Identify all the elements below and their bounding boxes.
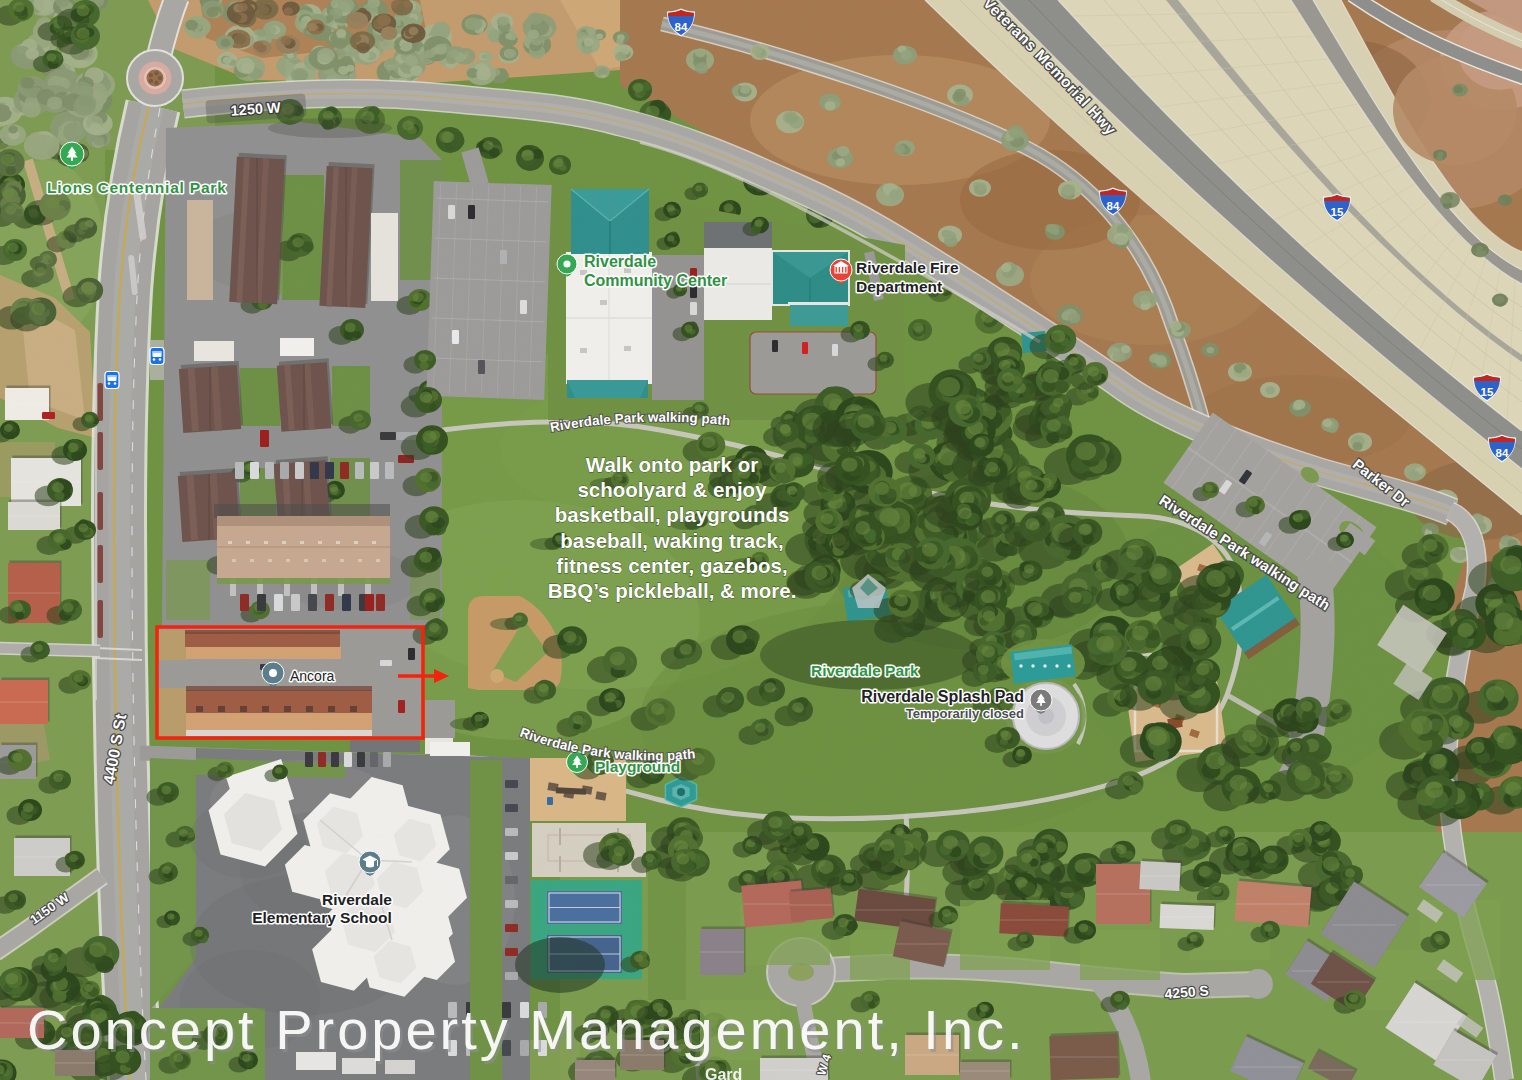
svg-text:Riverdale Splash Pad: Riverdale Splash Pad <box>861 688 1024 705</box>
svg-text:Playground: Playground <box>595 758 680 775</box>
svg-text:15: 15 <box>1481 386 1494 398</box>
svg-text:basketball, playgrounds: basketball, playgrounds <box>555 503 790 526</box>
svg-text:Walk onto park or: Walk onto park or <box>586 453 758 476</box>
svg-text:Department: Department <box>856 278 942 295</box>
svg-text:Elementary School: Elementary School <box>252 909 392 926</box>
svg-text:15: 15 <box>1331 206 1344 218</box>
svg-text:Riverdale Park: Riverdale Park <box>811 662 919 679</box>
svg-text:Riverdale Fire: Riverdale Fire <box>856 259 959 276</box>
svg-text:BBQ’s pickleball, & more.: BBQ’s pickleball, & more. <box>548 579 797 602</box>
svg-text:Riverdale: Riverdale <box>322 891 392 908</box>
svg-text:84: 84 <box>1107 200 1120 212</box>
svg-text:schoolyard & enjoy: schoolyard & enjoy <box>577 478 767 501</box>
svg-text:Riverdale: Riverdale <box>584 253 656 270</box>
svg-text:Lions Centennial Park: Lions Centennial Park <box>47 179 227 196</box>
svg-text:Community Center: Community Center <box>584 272 727 289</box>
svg-text:baseball, waking track,: baseball, waking track, <box>560 529 783 552</box>
svg-text:Ancora: Ancora <box>290 668 335 684</box>
svg-text:84: 84 <box>675 21 688 33</box>
svg-text:Concept Property Management, I: Concept Property Management, Inc. <box>27 998 1026 1061</box>
svg-text:84: 84 <box>1496 447 1509 459</box>
svg-text:Temporarily closed: Temporarily closed <box>906 706 1024 721</box>
svg-text:fitness center, gazebos,: fitness center, gazebos, <box>556 554 787 577</box>
svg-text:Gard: Gard <box>705 1066 742 1080</box>
